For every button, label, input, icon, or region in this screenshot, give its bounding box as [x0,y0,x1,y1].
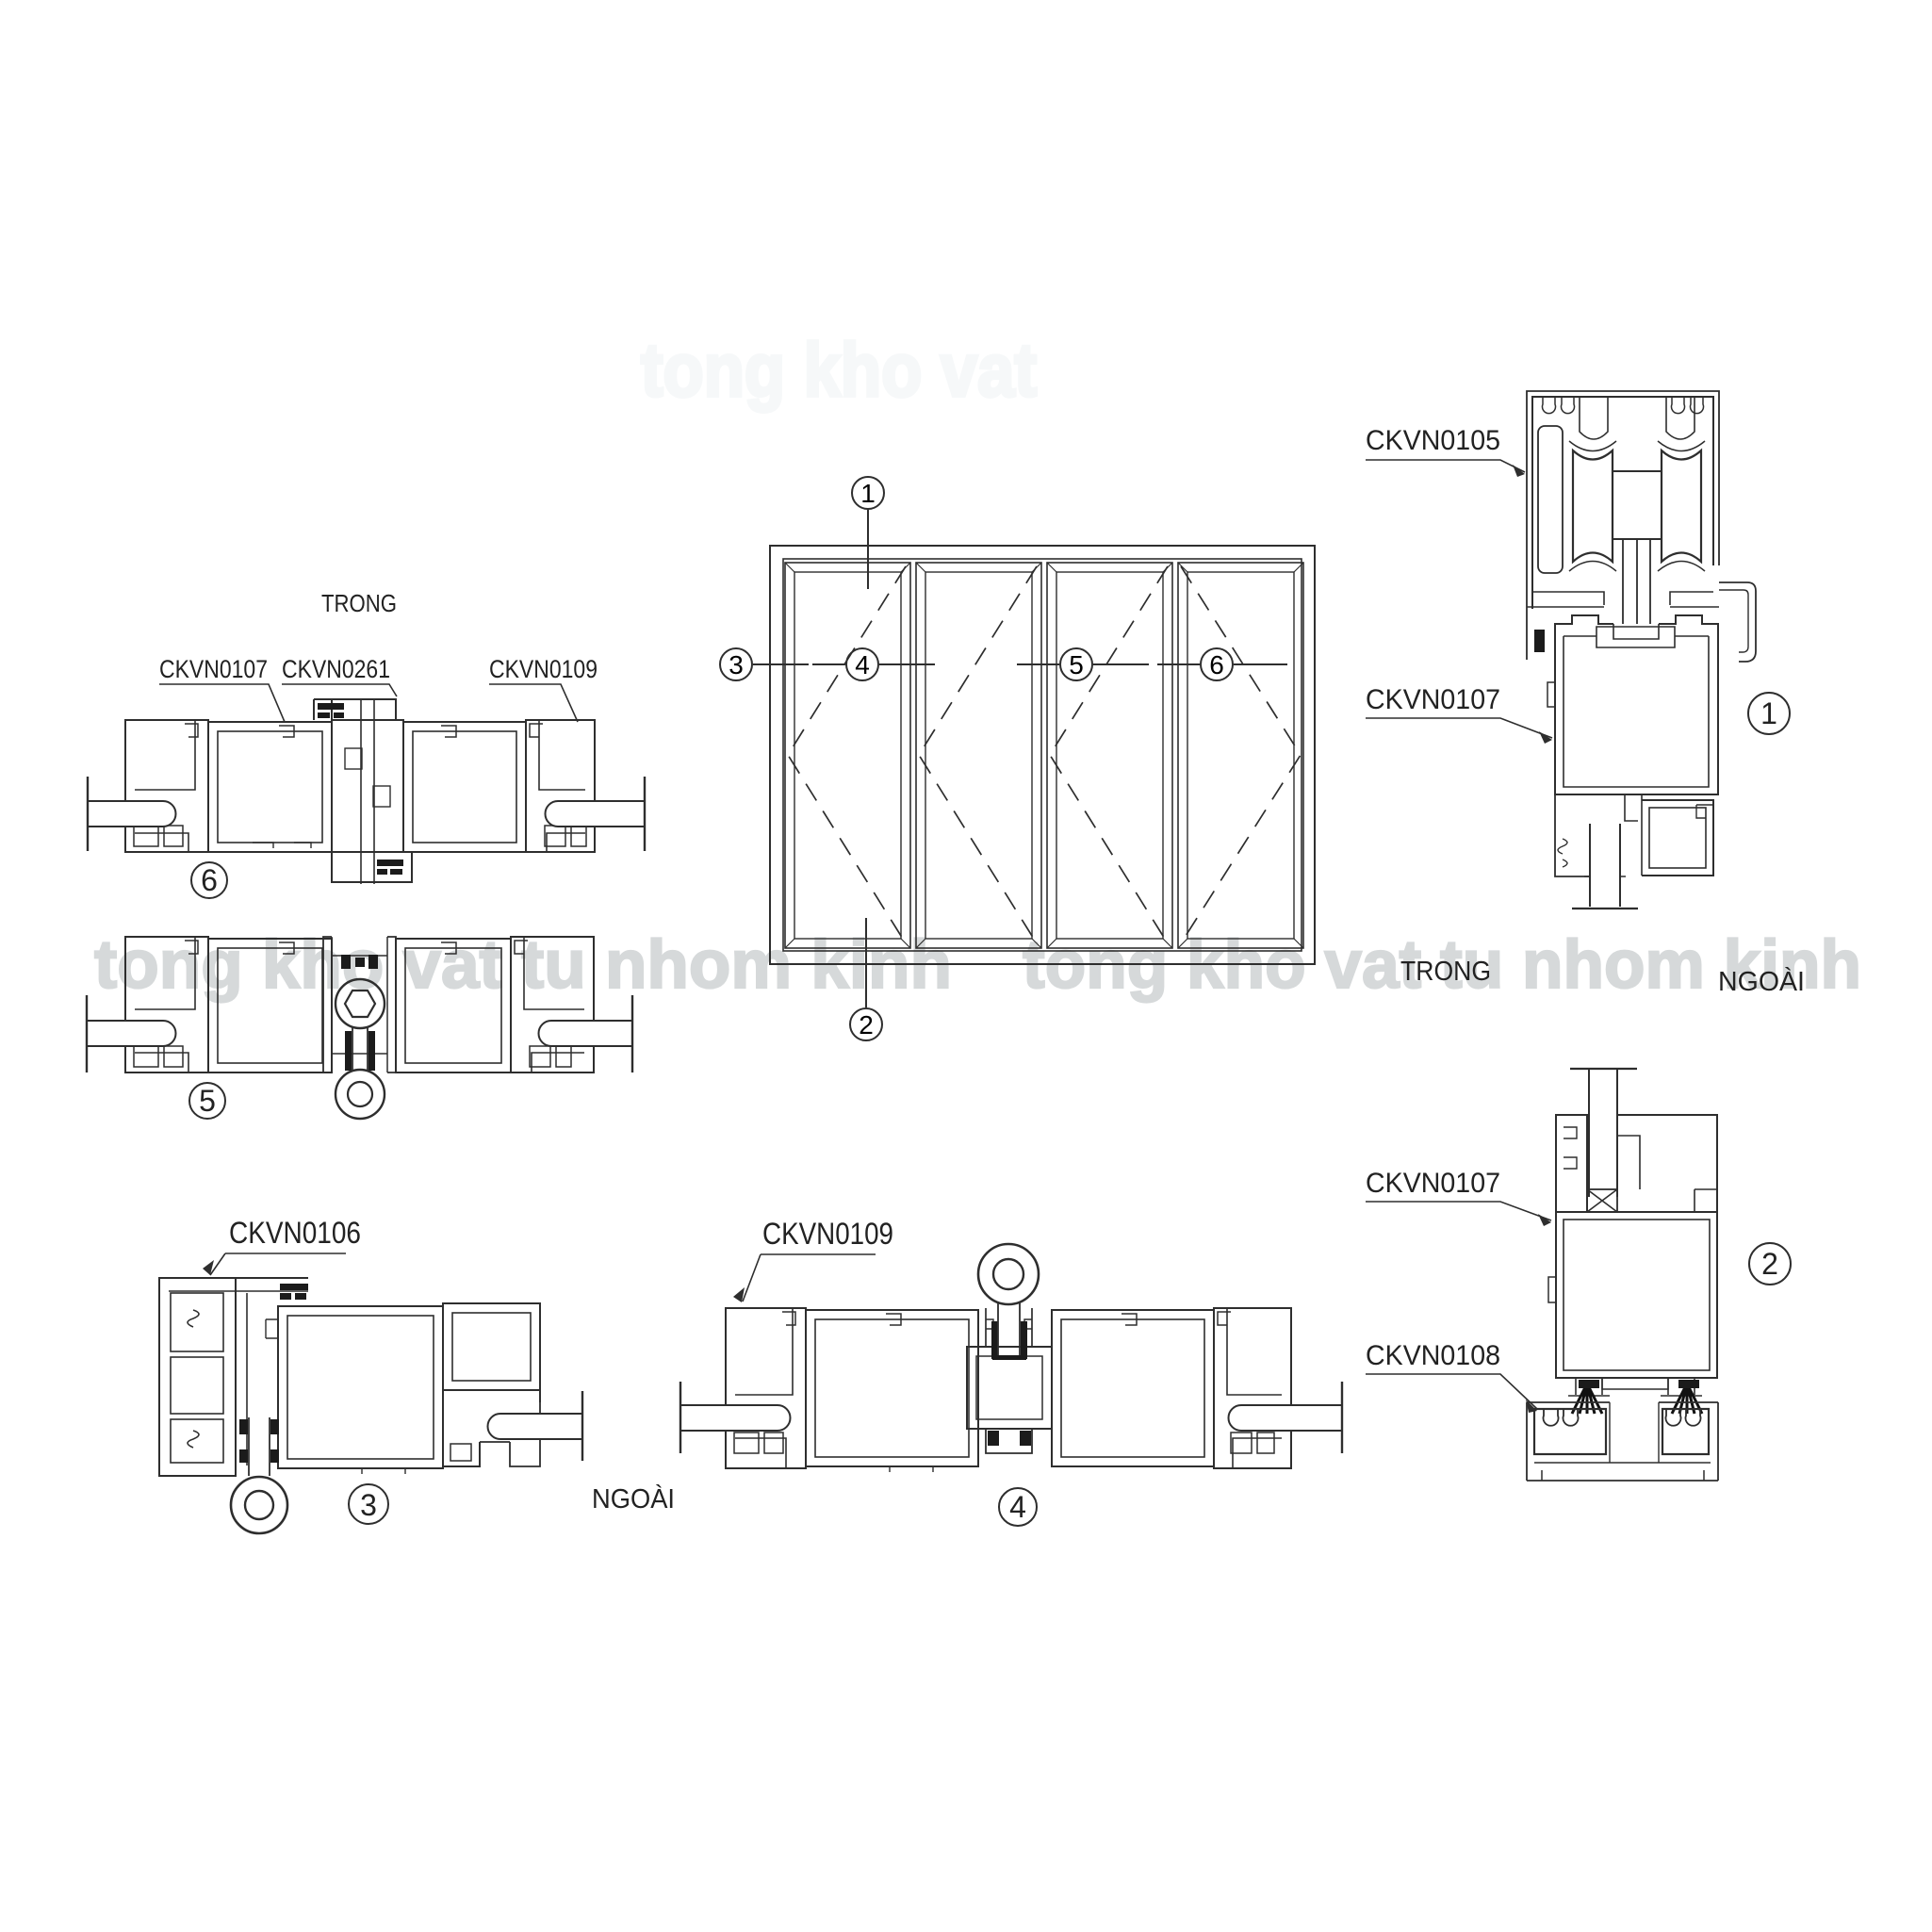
svg-text:CKVN0109: CKVN0109 [489,655,598,683]
svg-text:CKVN0106: CKVN0106 [229,1216,361,1250]
svg-text:4: 4 [855,650,870,679]
svg-text:CKVN0109: CKVN0109 [762,1217,893,1251]
svg-text:3: 3 [729,650,744,679]
svg-text:2: 2 [1761,1247,1778,1281]
svg-text:TRONG: TRONG [321,589,397,617]
svg-text:CKVN0105: CKVN0105 [1366,425,1500,456]
svg-text:CKVN0108: CKVN0108 [1366,1340,1500,1371]
svg-text:5: 5 [1069,650,1084,679]
svg-text:CKVN0107: CKVN0107 [1366,684,1500,715]
svg-text:2: 2 [859,1010,874,1040]
svg-text:NGOÀI: NGOÀI [592,1483,675,1514]
svg-text:CKVN0107: CKVN0107 [1366,1168,1500,1199]
svg-text:TRONG: TRONG [1400,957,1491,987]
svg-text:6: 6 [201,863,218,897]
svg-text:4: 4 [1009,1490,1026,1524]
svg-text:CKVN0107: CKVN0107 [159,655,268,683]
svg-text:1: 1 [860,479,876,508]
svg-text:NGOÀI: NGOÀI [1718,966,1805,997]
svg-text:6: 6 [1209,650,1224,679]
svg-text:CKVN0261: CKVN0261 [282,655,390,683]
svg-text:1: 1 [1760,696,1777,730]
svg-text:3: 3 [360,1488,377,1522]
svg-text:5: 5 [199,1084,216,1118]
svg-text:tong kho vat: tong kho vat [641,328,1037,412]
